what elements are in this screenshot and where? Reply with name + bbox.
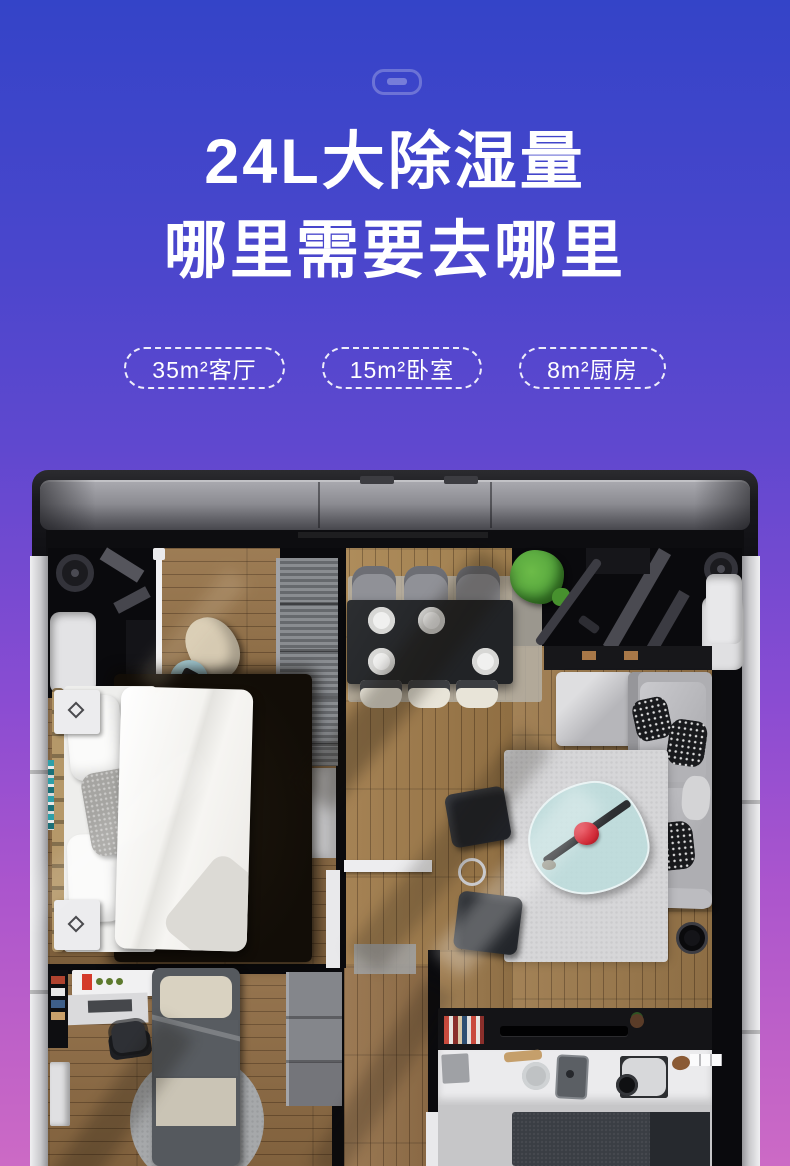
dining-chair-cream (408, 680, 450, 708)
outer-wall-right-seam (742, 800, 760, 804)
decor-ring (458, 858, 486, 886)
machine-band-seam (318, 482, 320, 528)
badge-living-room: 35m²客厅 (124, 347, 284, 389)
badge-bedroom: 15m²卧室 (322, 347, 482, 389)
book-spine (51, 1000, 65, 1008)
tv-console-wood-box (624, 651, 638, 660)
single-bed-pillow (160, 976, 232, 1018)
table-pebble (542, 860, 556, 870)
corridor-mat (354, 944, 416, 974)
dining-plate (368, 607, 395, 634)
hob-pot (616, 1074, 638, 1096)
outer-wall-left (30, 556, 48, 1166)
radiator-small (50, 1062, 70, 1126)
bench-wardrobe-seam (286, 1060, 342, 1063)
promo-banner: 24L大除湿量 哪里需要去哪里 35m²客厅 15m²卧室 8m²厨房 (0, 0, 790, 1166)
handle-bar (387, 78, 407, 85)
nook-door-cap (153, 548, 165, 560)
machine-underside-glow (298, 532, 488, 538)
dining-plate (418, 607, 445, 634)
sink-faucet (566, 1070, 574, 1078)
bed-duvet (115, 686, 254, 951)
badge-kitchen: 8m²厨房 (519, 347, 666, 389)
ottoman-leather (444, 785, 512, 849)
outer-wall-right-seam (742, 1030, 760, 1034)
floor-speaker (676, 922, 708, 954)
machine-band-notch (360, 476, 394, 484)
tv-console-wood-box (582, 651, 596, 660)
dining-plate (472, 648, 499, 675)
single-bed-sheet (156, 1078, 236, 1126)
floorplan-illustration (30, 470, 760, 1166)
headline-line2: 哪里需要去哪里 (0, 207, 790, 296)
desk-item-dot (116, 978, 123, 985)
desk-item-dot (96, 978, 103, 985)
book-spine (51, 988, 65, 996)
ottoman-leather (453, 890, 524, 955)
door-frame-horizontal (344, 860, 432, 872)
area-badges: 35m²客厅 15m²卧室 8m²厨房 (0, 347, 790, 389)
console-books (444, 1016, 484, 1044)
bench-wardrobe (286, 972, 342, 1106)
book-spine (51, 1012, 65, 1020)
soundbar (500, 1026, 628, 1036)
counter-tiles (690, 1054, 722, 1066)
door-frame-vertical (326, 870, 340, 968)
floor-corridor (344, 966, 438, 1166)
desk-keyboard (88, 999, 132, 1013)
outer-wall-right (742, 556, 760, 1166)
floor-kitchen-entry (438, 950, 512, 1008)
machine-notch-right-wall (706, 574, 742, 644)
machine-band-notch (444, 476, 478, 484)
drawer-handle-icon (372, 69, 422, 95)
single-bed (152, 968, 240, 1166)
headline-line1: 24L大除湿量 (0, 118, 790, 207)
outer-wall-left-seam (30, 990, 48, 994)
machine-band (40, 480, 750, 530)
machine-slot-left (50, 612, 96, 694)
machine-band-seam (490, 482, 492, 528)
sofa-pillow-patterned (665, 718, 709, 769)
dining-chair-gray (404, 566, 448, 604)
dining-chair-cream (360, 680, 402, 708)
headline: 24L大除湿量 哪里需要去哪里 (0, 118, 790, 296)
machine-band-endcap-left (40, 480, 114, 530)
kitchen-appliance (441, 1053, 469, 1083)
office-chair (110, 1020, 148, 1054)
round-plate (522, 1062, 550, 1090)
dining-chair-gray (456, 566, 500, 604)
dining-chair-gray (352, 566, 396, 604)
bench-wardrobe-seam (286, 1016, 342, 1019)
outer-wall-left-seam (30, 770, 48, 774)
dining-plate (368, 648, 395, 675)
machine-band-endcap-right (676, 480, 750, 530)
headboard-books-teal (48, 760, 54, 830)
desk-item-red (82, 974, 92, 990)
duvet-fold (160, 851, 253, 952)
desk-item-dot (106, 978, 113, 985)
machine-speaker-left (56, 554, 94, 592)
nook-door-leaf (156, 554, 162, 682)
sofa-chaise (556, 672, 634, 746)
red-flower (574, 822, 599, 845)
console-plant-pot (630, 1014, 644, 1028)
kitchen-island-dark (650, 1112, 710, 1166)
dining-chair-cream (456, 680, 498, 708)
book-spine (51, 976, 65, 984)
